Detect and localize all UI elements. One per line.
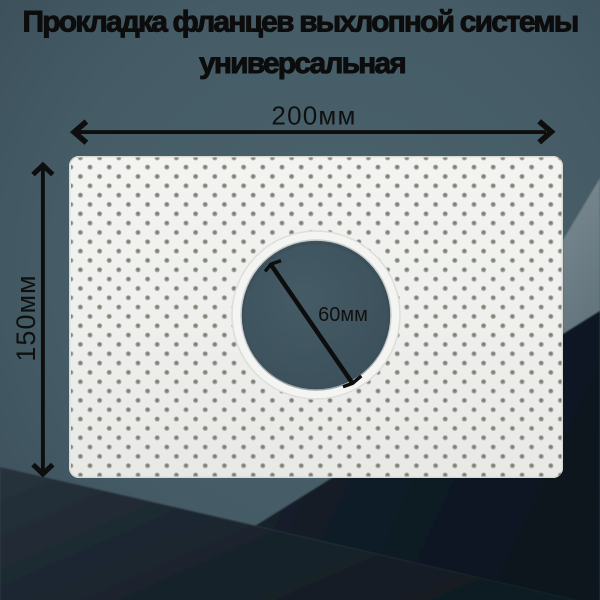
svg-text:150мм: 150мм bbox=[11, 274, 41, 361]
svg-text:200мм: 200мм bbox=[271, 101, 356, 131]
svg-text:универсальная: универсальная bbox=[199, 47, 405, 80]
svg-text:Прокладка фланцев выхлопной си: Прокладка фланцев выхлопной системы bbox=[23, 6, 578, 39]
svg-text:60мм: 60мм bbox=[318, 304, 368, 326]
